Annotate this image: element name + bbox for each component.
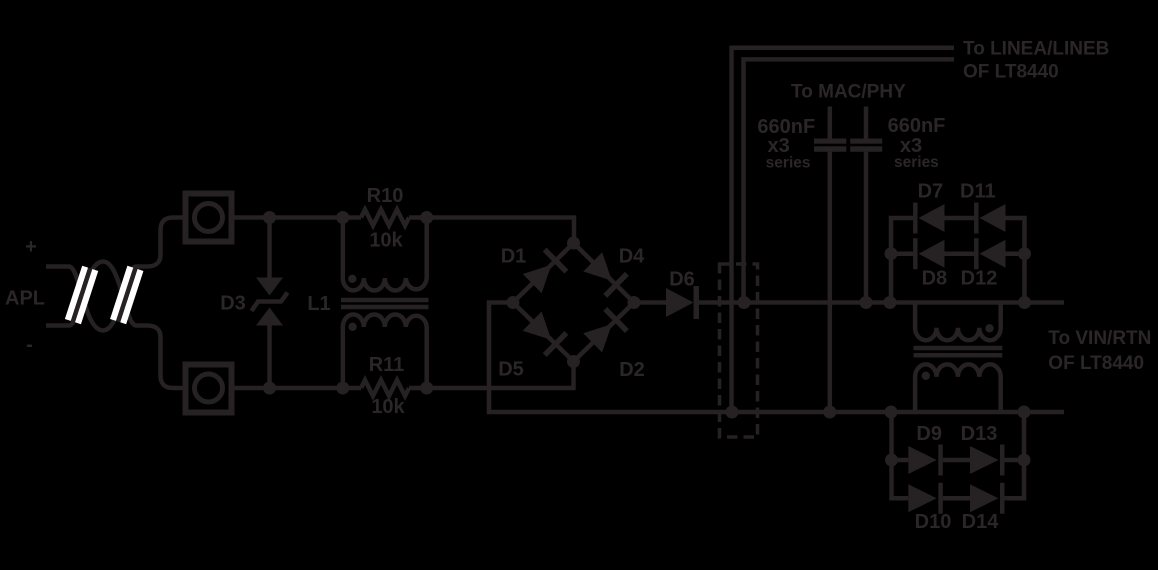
- svg-text:APL: APL: [5, 288, 45, 310]
- svg-text:To LINEA/LINEB: To LINEA/LINEB: [963, 39, 1109, 60]
- svg-text:D3: D3: [220, 292, 246, 314]
- svg-text:L1: L1: [307, 293, 330, 315]
- svg-text:D6: D6: [669, 269, 695, 291]
- svg-text:D8: D8: [922, 268, 948, 290]
- svg-text:series: series: [766, 155, 811, 172]
- svg-text:D7: D7: [918, 181, 944, 203]
- svg-text:10k: 10k: [369, 230, 403, 252]
- svg-text:R11: R11: [369, 354, 405, 376]
- svg-text:OF LT8440: OF LT8440: [1048, 353, 1144, 374]
- svg-text:D11: D11: [960, 181, 996, 203]
- svg-text:D14: D14: [962, 511, 1000, 533]
- svg-text:D9: D9: [916, 423, 942, 445]
- svg-text:10k: 10k: [371, 396, 405, 418]
- svg-text:D2: D2: [619, 359, 645, 381]
- svg-text:+: +: [25, 236, 37, 258]
- svg-text:To MAC/PHY: To MAC/PHY: [791, 82, 906, 103]
- svg-text:R10: R10: [367, 185, 404, 207]
- svg-text:D12: D12: [961, 268, 998, 290]
- svg-text:-: -: [26, 334, 33, 356]
- svg-text:D13: D13: [961, 423, 998, 445]
- svg-text:D5: D5: [498, 359, 524, 381]
- svg-text:To VIN/RTN: To VIN/RTN: [1048, 328, 1151, 349]
- svg-text:D10: D10: [915, 511, 952, 533]
- svg-text:D4: D4: [619, 246, 645, 268]
- svg-text:series: series: [894, 154, 939, 171]
- svg-text:D1: D1: [501, 246, 527, 268]
- svg-text:OF LT8440: OF LT8440: [963, 62, 1059, 83]
